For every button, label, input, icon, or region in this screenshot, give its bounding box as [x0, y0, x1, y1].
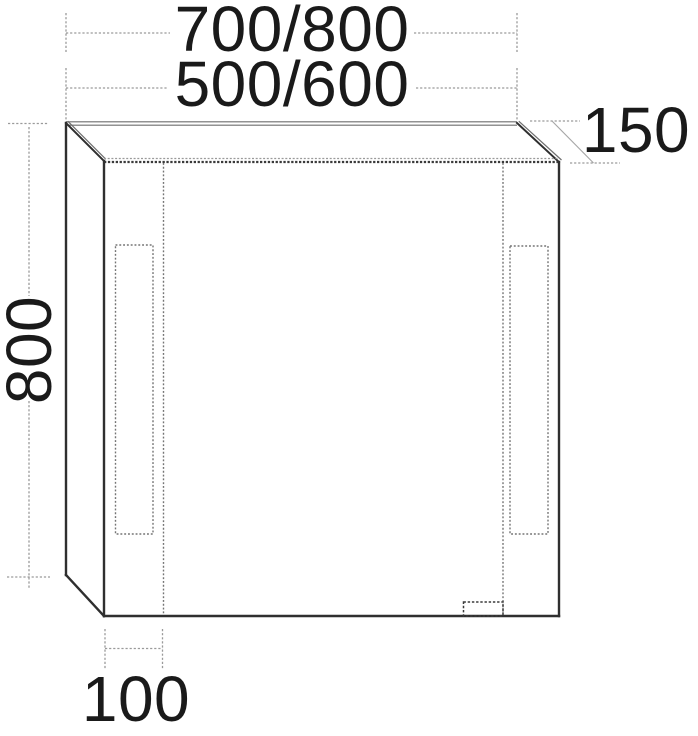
dimension-label-bottom-inset: 100 — [82, 663, 190, 735]
side-panel-bottom-diagonal — [66, 575, 104, 616]
light-strip-left — [116, 245, 154, 534]
cabinet-top-face-edges — [66, 121, 562, 160]
top-left-diagonal-icon — [66, 123, 104, 161]
dimension-label-height: 800 — [0, 296, 65, 404]
light-strip-right — [510, 246, 548, 534]
cabinet-outline — [66, 123, 559, 616]
top-right-diagonal-outer — [519, 121, 562, 160]
door-and-light-details — [116, 163, 549, 615]
technical-drawing-canvas: 700/800 500/600 150 800 100 — [0, 0, 698, 736]
dimension-label-top-width-small: 500/600 — [175, 48, 410, 120]
mirror-cabinet-diagram: 700/800 500/600 150 800 100 — [0, 0, 698, 736]
top-right-diagonal — [517, 123, 559, 162]
socket-detail-rect — [464, 602, 504, 616]
dimension-label-depth: 150 — [582, 94, 690, 166]
cabinet-top-face-main-diagonals — [66, 123, 559, 162]
top-left-diagonal-outer — [68, 121, 106, 159]
